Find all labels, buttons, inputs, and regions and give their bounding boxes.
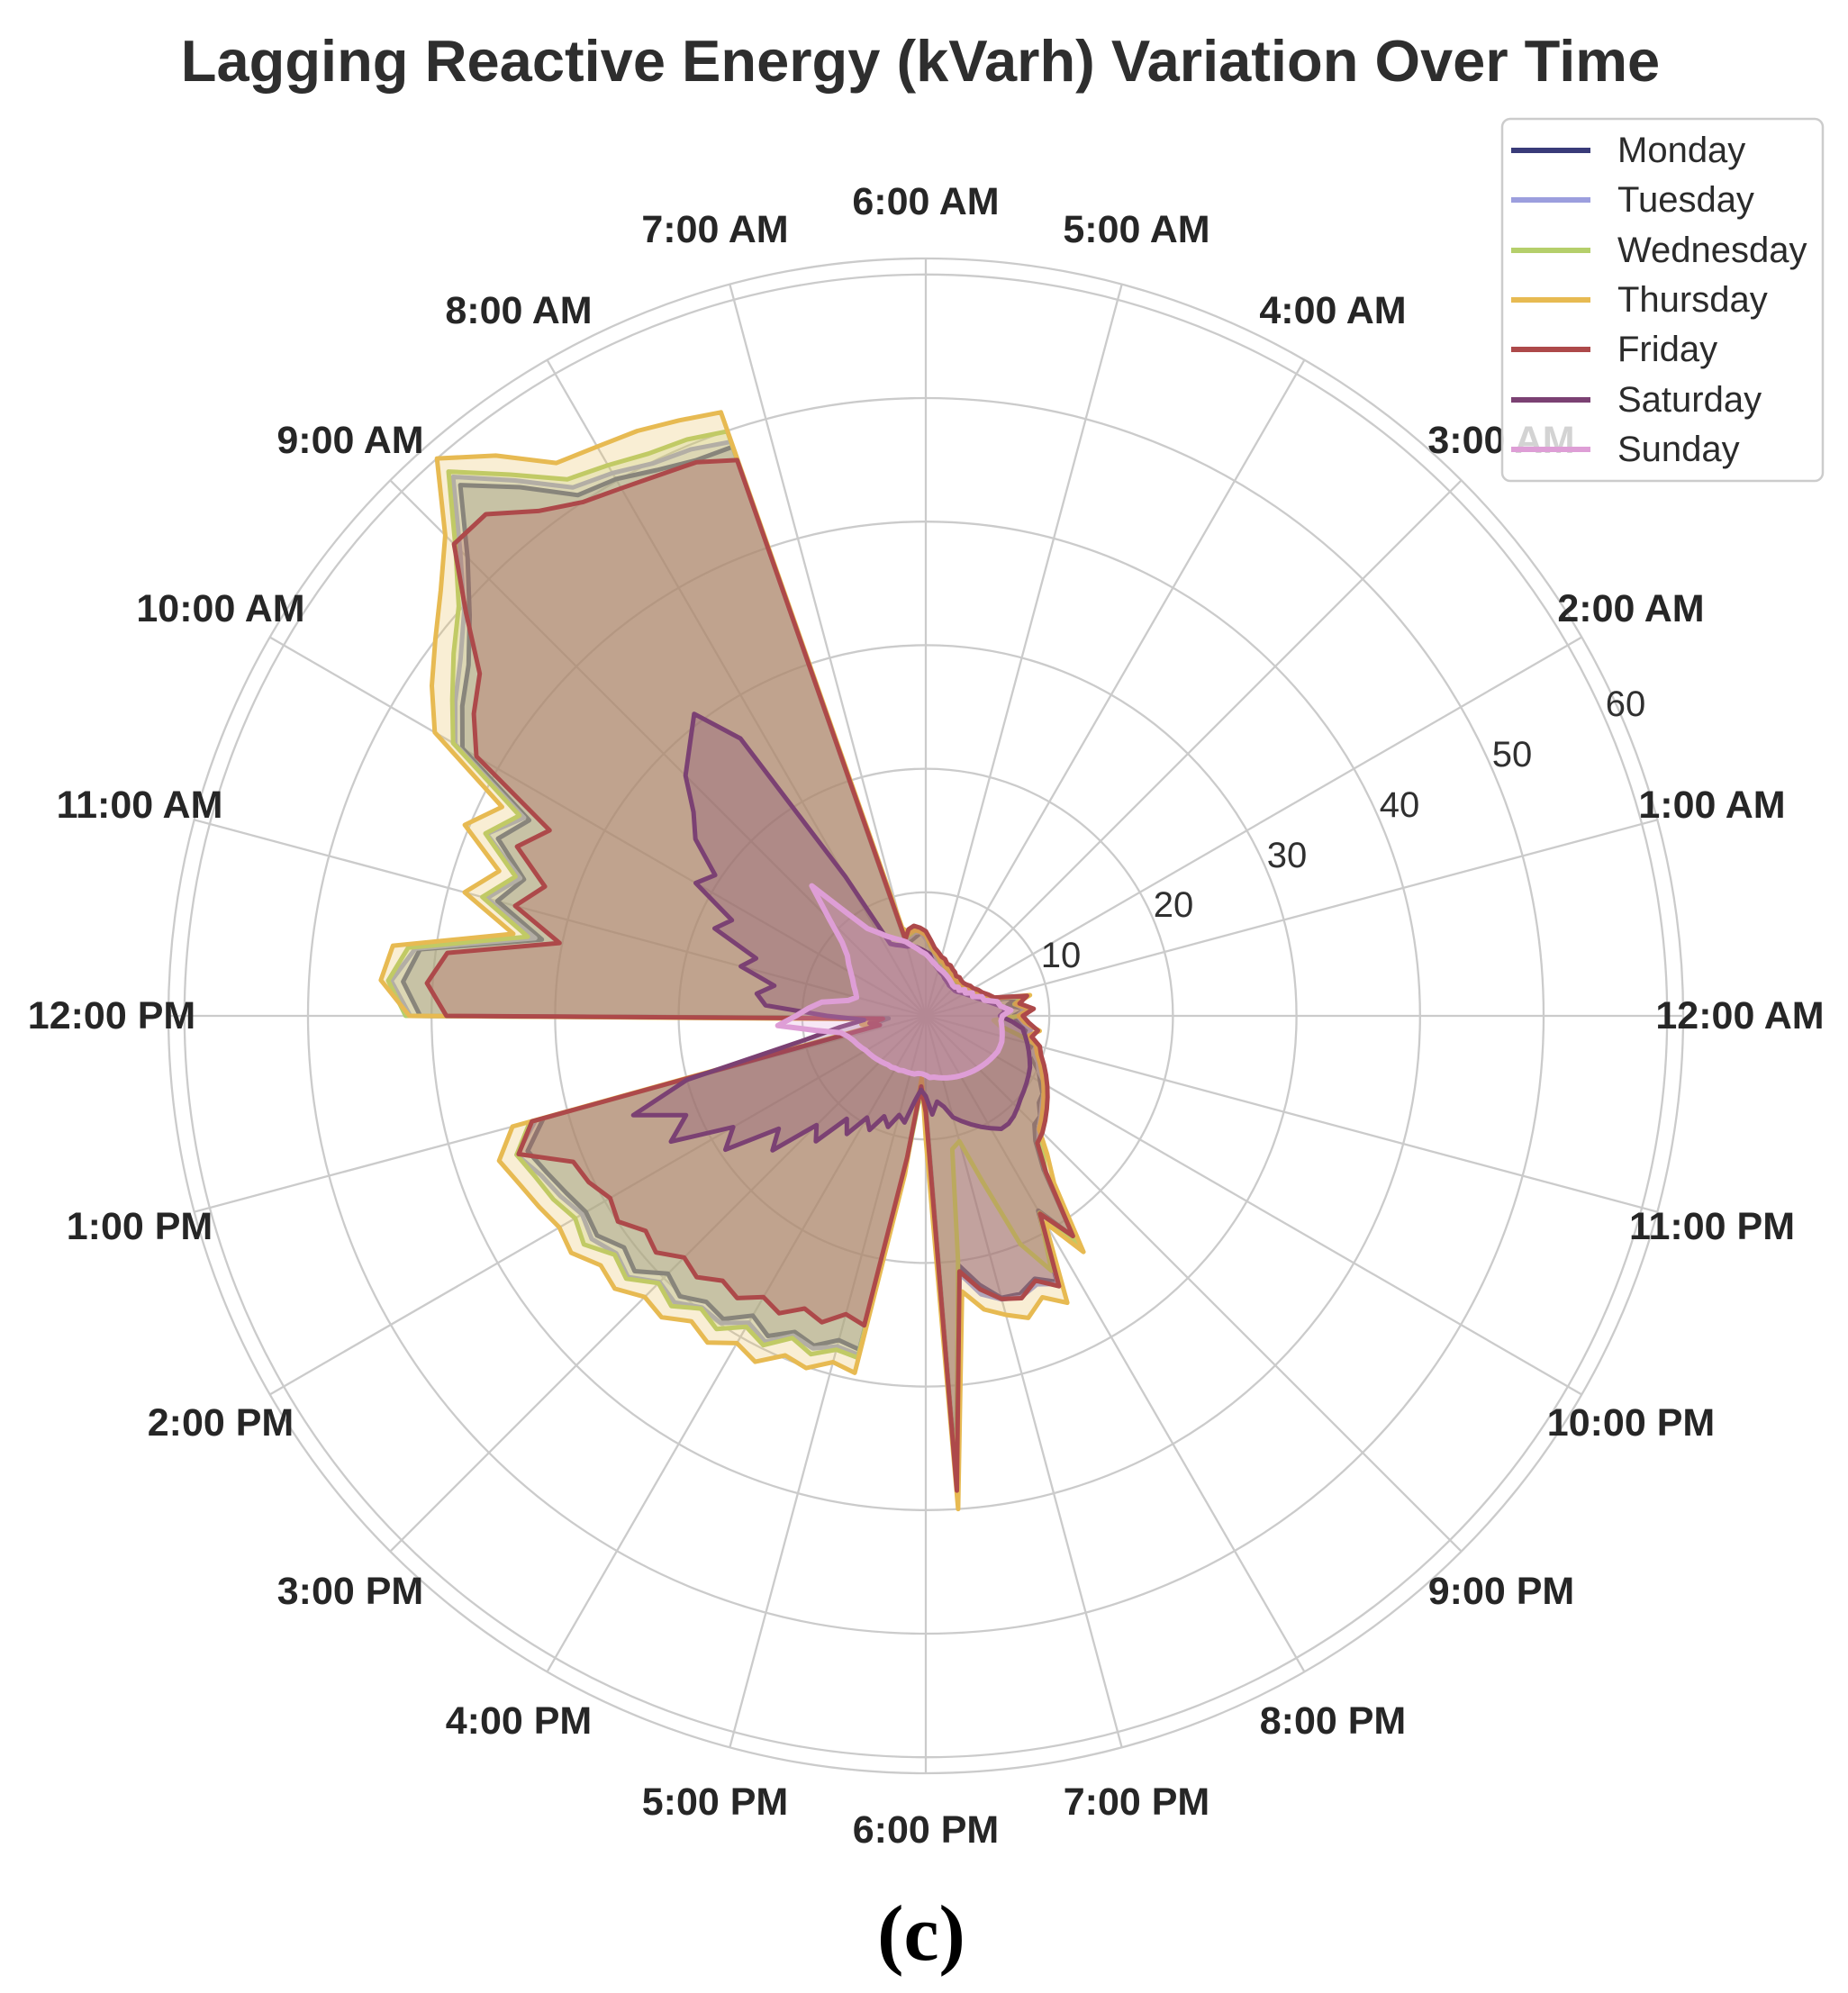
svg-text:12:00 AM: 12:00 AM: [1655, 994, 1824, 1037]
svg-text:5:00 AM: 5:00 AM: [1063, 208, 1209, 251]
svg-text:Tuesday: Tuesday: [1617, 180, 1754, 220]
svg-text:3:00 PM: 3:00 PM: [277, 1570, 424, 1613]
svg-text:20: 20: [1154, 885, 1194, 925]
svg-text:Sunday: Sunday: [1617, 430, 1740, 469]
svg-text:Monday: Monday: [1617, 131, 1745, 170]
svg-text:9:00 AM: 9:00 AM: [276, 419, 423, 462]
svg-text:2:00 PM: 2:00 PM: [148, 1401, 294, 1445]
svg-text:Thursday: Thursday: [1617, 280, 1768, 320]
svg-text:30: 30: [1267, 836, 1308, 875]
svg-text:8:00 PM: 8:00 PM: [1260, 1699, 1407, 1743]
svg-text:4:00 AM: 4:00 AM: [1259, 289, 1406, 332]
svg-text:Friday: Friday: [1617, 330, 1717, 369]
svg-text:40: 40: [1380, 785, 1420, 825]
svg-text:60: 60: [1606, 684, 1646, 724]
svg-text:7:00 PM: 7:00 PM: [1064, 1780, 1210, 1824]
svg-text:7:00 AM: 7:00 AM: [641, 208, 788, 251]
svg-text:10:00 PM: 10:00 PM: [1547, 1401, 1715, 1445]
svg-text:4:00 PM: 4:00 PM: [446, 1699, 593, 1743]
svg-text:12:00 PM: 12:00 PM: [28, 994, 195, 1037]
svg-text:6:00 AM: 6:00 AM: [852, 180, 999, 223]
svg-text:10: 10: [1041, 936, 1082, 975]
svg-text:10:00 AM: 10:00 AM: [136, 587, 304, 630]
svg-text:11:00 AM: 11:00 AM: [57, 784, 223, 827]
svg-text:6:00 PM: 6:00 PM: [853, 1808, 1000, 1852]
svg-text:(c): (c): [877, 1890, 965, 1978]
svg-text:2:00 AM: 2:00 AM: [1557, 587, 1704, 630]
svg-text:Saturday: Saturday: [1617, 380, 1762, 420]
svg-text:50: 50: [1492, 735, 1533, 775]
svg-text:1:00 PM: 1:00 PM: [67, 1205, 213, 1248]
svg-text:11:00 PM: 11:00 PM: [1629, 1205, 1795, 1248]
svg-text:9:00 PM: 9:00 PM: [1428, 1570, 1575, 1613]
svg-text:Lagging Reactive Energy (kVarh: Lagging Reactive Energy (kVarh) Variatio…: [181, 28, 1660, 94]
svg-text:Wednesday: Wednesday: [1617, 231, 1807, 270]
svg-text:5:00 PM: 5:00 PM: [642, 1780, 789, 1824]
svg-text:1:00 AM: 1:00 AM: [1638, 784, 1785, 827]
svg-text:8:00 AM: 8:00 AM: [445, 289, 592, 332]
